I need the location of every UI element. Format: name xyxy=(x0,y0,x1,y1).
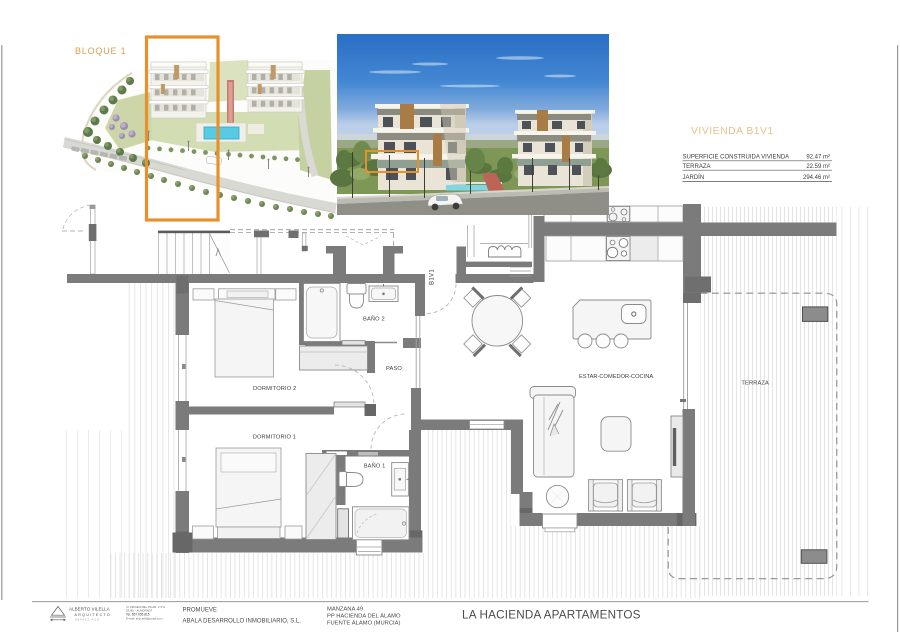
svg-text:DORMITORIO 2: DORMITORIO 2 xyxy=(253,386,296,392)
svg-text:TERRAZA: TERRAZA xyxy=(683,164,711,170)
svg-text:ABALA DESARROLLO INMOBILIARIO,: ABALA DESARROLLO INMOBILIARIO, S.L. xyxy=(183,619,302,625)
svg-text:22.59 m²: 22.59 m² xyxy=(806,164,830,170)
svg-text:MANZANA 49: MANZANA 49 xyxy=(327,607,363,613)
svg-text:VIVIENDA B1V1: VIVIENDA B1V1 xyxy=(691,126,774,137)
svg-text:SUPERFICIE CONSTRUIDA VIVIENDA: SUPERFICIE CONSTRUIDA VIVIENDA xyxy=(683,155,790,161)
svg-text:BAÑO 1: BAÑO 1 xyxy=(364,463,386,470)
svg-text:FUENTE ÁLAMO (MURCIA): FUENTE ÁLAMO (MURCIA) xyxy=(327,620,400,627)
svg-text:JARDÍN: JARDÍN xyxy=(683,174,705,181)
svg-text:ALBERTO VILELLA: ALBERTO VILELLA xyxy=(69,607,111,612)
svg-text:BAÑO 2: BAÑO 2 xyxy=(363,316,385,323)
svg-text:BLOQUE 1: BLOQUE 1 xyxy=(75,46,126,56)
svg-text:DORMITORIO 1: DORMITORIO 1 xyxy=(253,435,296,441)
svg-text:E-mail: avjz.arki@gmail.com: E-mail: avjz.arki@gmail.com xyxy=(126,617,163,621)
svg-text:LA HACIENDA APARTAMENTOS: LA HACIENDA APARTAMENTOS xyxy=(462,609,641,622)
svg-text:92.47 m²: 92.47 m² xyxy=(806,155,830,161)
svg-text:ARQUITECTO: ARQUITECTO xyxy=(75,613,112,617)
svg-text:B1V1: B1V1 xyxy=(429,269,436,285)
svg-text:PROMUEVE: PROMUEVE xyxy=(183,608,217,614)
svg-text:584412 ACS: 584412 ACS xyxy=(75,618,100,622)
svg-text:PP HACIENDA DEL ÁLAMO: PP HACIENDA DEL ÁLAMO xyxy=(327,613,401,620)
svg-text:PASO: PASO xyxy=(386,366,402,372)
svg-text:294.46 m²: 294.46 m² xyxy=(803,175,830,181)
svg-text:TERRAZA: TERRAZA xyxy=(741,381,769,387)
svg-text:ESTAR-COMEDOR-COCINA: ESTAR-COMEDOR-COCINA xyxy=(579,374,653,380)
